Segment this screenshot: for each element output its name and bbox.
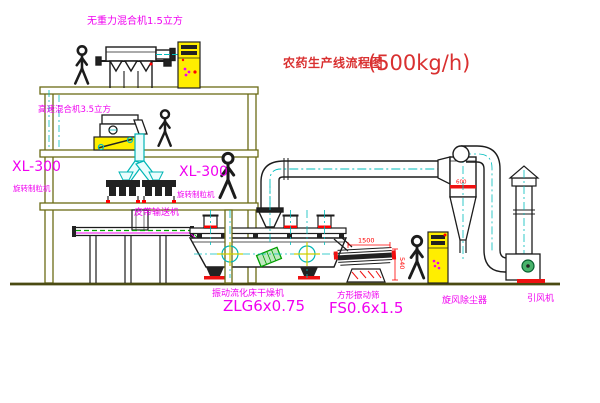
process-flow-diagram: 农药生产线流程图 (500kg/h) 无重力混合机1.5立方 高速混合机3.5立…	[0, 0, 600, 403]
label-belt-conveyor: 皮带输送机	[134, 206, 179, 218]
label-gravity-free-mixer: 无重力混合机1.5立方	[87, 14, 183, 27]
label-granulator-right-name: 旋转制粒机	[177, 189, 215, 199]
diagram-canvas: 农药生产线流程图 (500kg/h) 无重力混合机1.5立方 高速混合机3.5立…	[0, 0, 600, 403]
induced-draft-fan	[506, 254, 545, 283]
dimension-sieve-height: 540	[398, 257, 406, 269]
exhaust-stack	[510, 166, 538, 256]
label-sieve-model: FS0.6x1.5	[329, 299, 403, 317]
diagram-title-capacity: (500kg/h)	[368, 51, 470, 75]
label-granulator-left-name: 旋转制粒机	[13, 183, 51, 193]
dimension-sieve-length: 1500	[358, 237, 375, 245]
drive-belt-box	[94, 137, 138, 150]
belt-conveyor	[72, 226, 210, 283]
label-cyclone: 旋风除尘器	[442, 294, 487, 306]
person-figure-1	[75, 46, 88, 83]
label-dryer-model: ZLG6x0.75	[223, 297, 305, 315]
dryer-feet	[204, 267, 320, 280]
dimension-cyclone-diameter: 600	[456, 180, 467, 186]
gravity-free-mixer	[96, 47, 181, 88]
rotary-granulator-left	[106, 172, 140, 203]
label-granulator-left-model: XL-300	[12, 159, 61, 175]
control-cabinet-right	[428, 232, 448, 283]
down-pipe	[135, 134, 144, 161]
person-figure-4	[409, 236, 423, 278]
person-figure-2	[159, 110, 171, 145]
dryer-hood	[190, 228, 346, 234]
label-high-speed-mixer: 高速混合机3.5立方	[38, 104, 111, 115]
label-fan: 引风机	[527, 292, 554, 304]
label-granulator-right-model: XL-300	[179, 164, 228, 180]
control-cabinet-top	[178, 42, 200, 88]
